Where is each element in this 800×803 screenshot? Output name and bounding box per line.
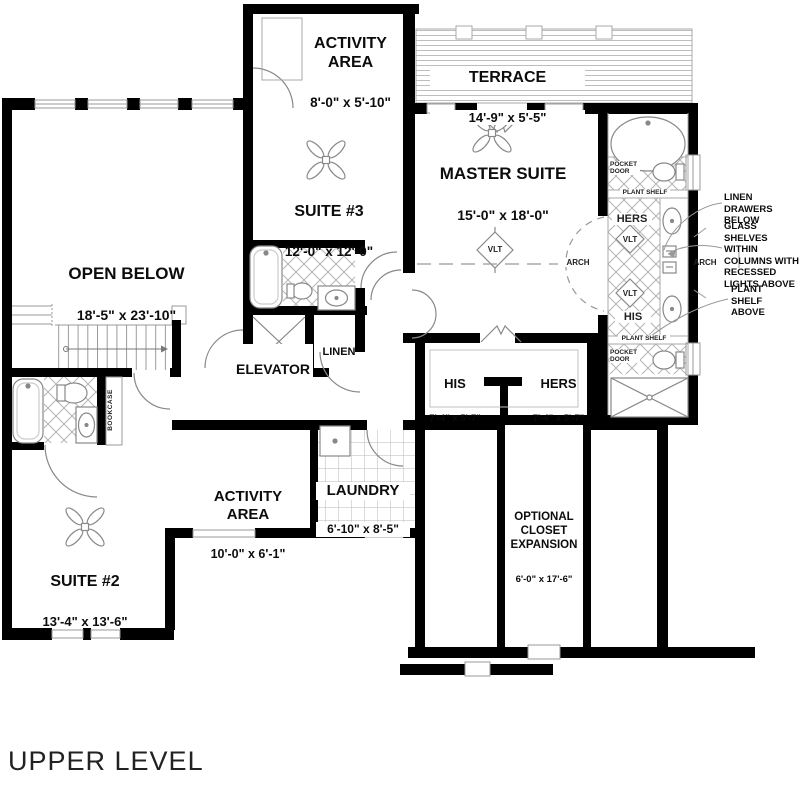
room-label-his-closet: HIS 7'-4" x 5'-7"	[420, 356, 490, 444]
room-label-open-below: OPEN BELOW 18'-5" x 23'-10"	[44, 244, 209, 343]
bookcase-label: BOOKCASE	[107, 380, 114, 440]
room-label-suite3: SUITE #3 12'-0" x 12'-0"	[256, 182, 402, 280]
his-vanity-label: HIS	[615, 311, 651, 323]
vlt-label-master: VLT	[482, 245, 508, 254]
room-label-terrace: TERRACE 14'-9" x 5'-5"	[430, 48, 585, 145]
plant-shelf-label-bottom: PLANT SHELF	[618, 335, 670, 342]
room-label-elevator: ELEVATOR	[233, 344, 313, 378]
room-label-hers-closet: HERS 7'-4" x 5'-7"	[521, 356, 596, 444]
plant-shelf-label-top: PLANT SHELF	[620, 189, 670, 196]
room-label-laundry: LAUNDRY 6'-10" x 8'-5"	[316, 462, 410, 556]
arch-label-right: ARCH	[690, 258, 720, 267]
pocket-door-label-top: POCKET DOOR	[610, 161, 640, 175]
room-label-linen: LINEN	[315, 333, 363, 360]
room-label-activity-lower: ACTIVITY AREA 10'-0" x 6'-1"	[195, 468, 301, 581]
room-label-activity-upper: ACTIVITY AREA 8'-0" x 5'-10"	[273, 14, 428, 131]
room-label-optional-closet: OPTIONAL CLOSET EXPANSION 6'-0" x 17'-6"	[505, 490, 583, 605]
annotation-glass-shelves: GLASS SHELVES WITHIN COLUMNS WITH RECESS…	[724, 221, 800, 290]
arch-label-left: ARCH	[562, 258, 594, 267]
room-label-master-suite: MASTER SUITE 15'-0" x 18'-0"	[423, 144, 583, 243]
sheet-title: UPPER LEVEL	[8, 746, 204, 777]
room-label-suite2: SUITE #2 13'-4" x 13'-6"	[25, 552, 145, 649]
annotation-plant-shelf-above: PLANT SHELF ABOVE	[731, 284, 791, 319]
vlt-label-hers: VLT	[617, 235, 643, 244]
floor-plan: ACTIVITY AREA 8'-0" x 5'-10" TERRACE 14'…	[0, 0, 800, 803]
vlt-label-his: VLT	[617, 289, 643, 298]
pocket-door-label-bottom: POCKET DOOR	[610, 349, 640, 363]
hers-vanity-label: HERS	[612, 213, 652, 225]
